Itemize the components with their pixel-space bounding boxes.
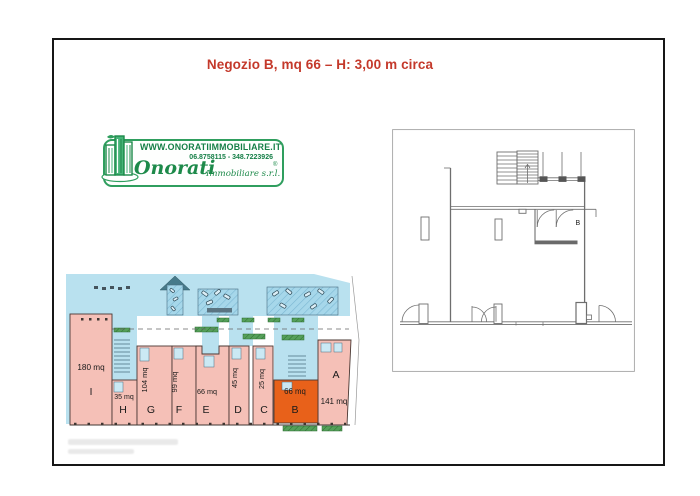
unit-area-label: 45 mq	[230, 368, 239, 388]
scanned-document-page: Negozio B, mq 66 – H: 3,00 m circa WWW.O…	[0, 0, 700, 496]
unit-letter: C	[260, 404, 268, 416]
storefront-wall	[400, 322, 632, 326]
unit-area-label: 104 mq	[140, 367, 149, 392]
unit-letter: I	[90, 387, 93, 398]
unit-area-label: 99 mq	[170, 372, 179, 393]
unit-letter: B	[291, 404, 298, 416]
staircase	[497, 151, 538, 184]
unit-area-label: 180 mq	[77, 363, 105, 372]
unit-area-label: 25 mq	[257, 369, 266, 389]
unit-shape-A	[318, 340, 351, 425]
bathroom-room: B	[535, 209, 581, 244]
unit-letter: F	[176, 404, 182, 416]
logo-website: WWW.ONORATIIMMOBILIARE.IT	[140, 142, 280, 152]
logo-brand-name: Onorati	[134, 157, 215, 179]
window-pillars	[421, 209, 526, 240]
unit-letter: A	[332, 369, 339, 381]
column-pillars	[540, 176, 586, 182]
unit-letter: D	[234, 404, 242, 416]
unit-area-label: 66 mq	[284, 387, 306, 396]
faded-caption	[68, 449, 134, 454]
parking-kiosk	[207, 308, 232, 313]
floor-plan-border	[393, 130, 635, 372]
storefront-pillars	[419, 303, 592, 324]
unit-area-label: 66 mq	[197, 387, 217, 396]
unit-letter: E	[202, 404, 209, 416]
unit-letter: H	[119, 404, 127, 416]
site-plan: 180 mq I 35 mq H 104 mq G 99 mq F 66 mq …	[66, 268, 362, 434]
unit-area-label: 35 mq	[114, 394, 134, 401]
floor-plan: B	[392, 129, 635, 372]
unit-area-label: 141 mq	[321, 397, 348, 406]
lot-boundary-line	[352, 276, 359, 425]
floor-plan-walls	[444, 152, 596, 322]
room-label: B	[576, 220, 581, 227]
registered-trademark-symbol: ®	[273, 162, 277, 168]
page-title: Negozio B, mq 66 – H: 3,00 m circa	[170, 57, 470, 72]
logo-brand-suffix: Immobiliare s.r.l.	[206, 169, 280, 179]
unit-letter: G	[147, 404, 155, 416]
faded-caption	[68, 439, 178, 445]
